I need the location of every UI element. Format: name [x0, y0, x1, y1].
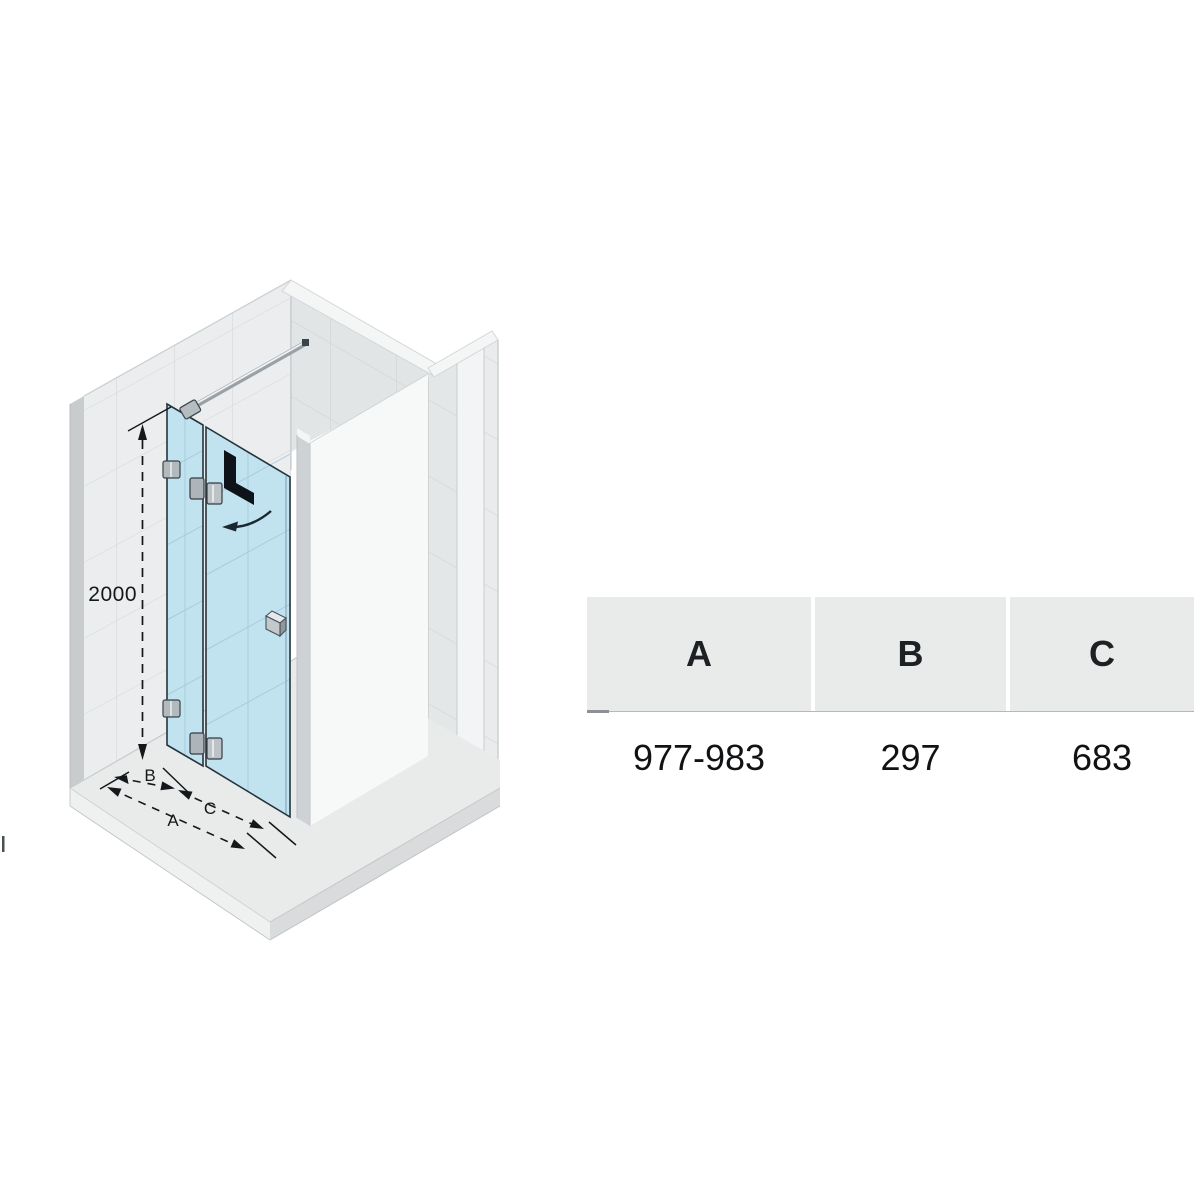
table-header-tick: [587, 710, 609, 713]
height-dimension-label: 2000: [88, 583, 137, 606]
left-wall-edge-strip: [70, 396, 84, 788]
table-value-b: 297: [815, 737, 1006, 779]
page: L: [0, 0, 1200, 1200]
table-header-underline: [587, 711, 1194, 712]
dim-b-label: B: [144, 766, 155, 785]
right-wall-inner-face: [310, 374, 428, 826]
wall-bracket-top: [163, 461, 180, 478]
page-edge-mark: [2, 836, 5, 852]
right-wall: [297, 374, 428, 826]
right-back-wall: [428, 331, 498, 790]
right-wall-front-edge: [297, 435, 310, 826]
dim-c-label: C: [204, 799, 216, 818]
dimension-table: A B C 977-983 297 683: [587, 597, 1194, 779]
table-value-row: 977-983 297 683: [587, 737, 1194, 779]
table-header-a: A: [587, 597, 811, 711]
table-value-a: 977-983: [587, 737, 811, 779]
table-value-c: 683: [1010, 737, 1194, 779]
table-header-row: A B C: [587, 597, 1194, 711]
table-header-b: B: [815, 597, 1006, 711]
wall-bracket-bottom: [163, 700, 180, 717]
table-header-c: C: [1010, 597, 1194, 711]
bar-end-cap: [302, 339, 309, 346]
dim-a-label: A: [167, 811, 179, 830]
